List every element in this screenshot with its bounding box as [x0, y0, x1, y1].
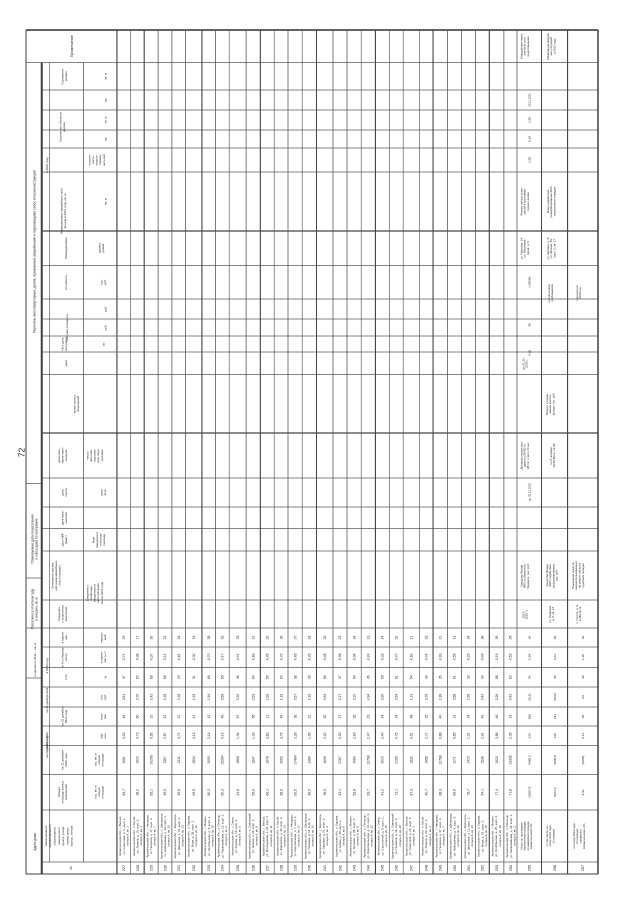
svg-text:2,28: 2,28 [293, 732, 297, 739]
svg-text:234: 234 [221, 865, 225, 871]
svg-text:селению: селению [100, 449, 104, 462]
svg-text:12: 12 [207, 715, 211, 719]
svg-text:-0,69: -0,69 [251, 653, 255, 661]
svg-text:литера А, кв. 9: литера А, кв. 9 [356, 826, 360, 846]
svg-text:3,71: 3,71 [177, 732, 181, 739]
svg-text:0,17: 0,17 [338, 694, 342, 701]
svg-text:литера А, кв. 11: литера А, кв. 11 [269, 825, 273, 847]
svg-text:0,57: 0,57 [293, 694, 297, 701]
svg-text:228: 228 [136, 865, 140, 871]
svg-text:литера А, кв. 13: литера А, кв. 13 [180, 825, 184, 847]
svg-text:руб.: руб. [103, 694, 107, 700]
svg-text:-0,74: -0,74 [424, 653, 428, 661]
svg-text:45: 45 [367, 675, 371, 679]
svg-text:цах: цах [64, 635, 68, 640]
svg-text:№ 59-ФЗ от 12.05: № 59-ФЗ от 12.05 [552, 443, 556, 467]
svg-text:49: 49 [279, 715, 283, 719]
svg-text:58: 58 [293, 675, 297, 679]
svg-text:3,54: 3,54 [394, 694, 398, 701]
svg-text:80,2: 80,2 [207, 789, 211, 796]
svg-text:44: 44 [122, 715, 126, 719]
svg-text:21: 21 [438, 636, 442, 640]
svg-text:59,6: 59,6 [251, 789, 255, 796]
svg-text:этап (очередь): этап (очередь) [57, 565, 61, 585]
svg-text:69,5: 69,5 [192, 789, 196, 796]
svg-text:-0,30: -0,30 [192, 653, 196, 661]
svg-text:3,10: 3,10 [352, 694, 356, 701]
svg-text:13768: 13768 [367, 755, 371, 764]
svg-text:243: 243 [352, 865, 356, 871]
svg-text:61: 61 [394, 675, 398, 679]
svg-text:4,91: 4,91 [581, 789, 585, 795]
svg-text:241: 241 [323, 865, 327, 871]
svg-text:87,3: 87,3 [409, 789, 413, 796]
svg-text:Ликвидировано: Ликвидировано [64, 237, 68, 259]
svg-text:27: 27 [338, 715, 342, 719]
svg-text:34: 34 [352, 636, 356, 640]
svg-text:39: 39 [495, 636, 499, 640]
svg-text:литера А, кв. 3: литера А, кв. 3 [325, 826, 329, 846]
svg-text:1868: 1868 [236, 756, 240, 764]
svg-text:41: 41 [192, 715, 196, 719]
svg-text:корпус, литера: корпус, литера [70, 825, 74, 846]
svg-text:(факт): (факт) [64, 535, 68, 544]
svg-text:57: 57 [236, 715, 240, 719]
svg-text:89,5: 89,5 [453, 789, 457, 796]
svg-text:-0,11: -0,11 [163, 654, 167, 661]
svg-text:30: 30 [481, 675, 485, 679]
svg-text:заселении: заселении [64, 606, 68, 621]
svg-text:28,11: 28,11 [528, 693, 532, 701]
svg-text:1480: 1480 [308, 756, 312, 764]
svg-text:39: 39 [424, 675, 428, 679]
svg-text:36: 36 [293, 715, 297, 719]
svg-text:1,69: 1,69 [265, 694, 269, 701]
svg-text:235: 235 [236, 865, 240, 871]
svg-text:литера А, кв. 19: литера А, кв. 19 [210, 825, 214, 847]
svg-text:562: 562 [528, 714, 532, 719]
svg-text:31: 31 [453, 715, 457, 719]
svg-text:переселение граждан: переселение граждан [552, 186, 556, 216]
svg-text:0,19: 0,19 [221, 732, 225, 739]
svg-text:литера А, кв. 18: литера А, кв. 18 [398, 825, 402, 847]
svg-text:2093: 2093 [207, 756, 211, 764]
svg-text:6,18: 6,18 [528, 136, 532, 142]
svg-text:50,3: 50,3 [221, 789, 225, 796]
svg-text:29: 29 [553, 636, 557, 640]
svg-text:12087,9: 12087,9 [528, 786, 532, 797]
svg-text:на 31 декабря 2011: на 31 декабря 2011 [45, 687, 49, 713]
svg-text:66: 66 [163, 675, 167, 679]
svg-text:литера А, кв. 10: литера А, кв. 10 [167, 825, 171, 847]
svg-text:-0,45: -0,45 [265, 653, 269, 661]
svg-text:12768: 12768 [438, 755, 442, 764]
svg-text:24: 24 [381, 636, 385, 640]
svg-text:15: 15 [192, 636, 196, 640]
svg-text:232: 232 [192, 865, 196, 871]
svg-text:2053: 2053 [279, 756, 283, 764]
svg-text:кв. м: кв. м [103, 73, 107, 80]
svg-text:4,13: 4,13 [192, 732, 196, 739]
svg-text:37: 37 [338, 675, 342, 679]
svg-text:59: 59 [265, 675, 269, 679]
svg-text:11: 11 [409, 636, 413, 640]
svg-text:литера А, кв. 4: литера А, кв. 4 [139, 826, 143, 846]
svg-text:1520: 1520 [495, 756, 499, 764]
svg-text:литера А, кв. 14: литера А, кв. 14 [283, 825, 287, 847]
svg-text:1961: 1961 [122, 756, 126, 764]
svg-text:44,6: 44,6 [236, 789, 240, 796]
svg-text:65: 65 [221, 675, 225, 679]
svg-text:54: 54 [352, 675, 356, 679]
svg-text:литера А, кв. 1: литера А, кв. 1 [125, 826, 129, 846]
svg-text:и снесено, кв. м: и снесено, кв. м [35, 597, 39, 621]
svg-text:66,1: 66,1 [265, 789, 269, 796]
svg-text:46,5: 46,5 [308, 789, 312, 796]
svg-text:34: 34 [467, 636, 471, 640]
svg-text:32: 32 [394, 636, 398, 640]
svg-text:73,1: 73,1 [394, 789, 398, 796]
svg-text:Стоимость,: Стоимость, [64, 274, 68, 290]
svg-text:1473: 1473 [467, 756, 471, 764]
svg-text:-0,52: -0,52 [509, 653, 513, 661]
svg-text:256: 256 [553, 865, 557, 871]
svg-text:0,53: 0,53 [251, 694, 255, 701]
svg-text:17: 17 [136, 636, 140, 640]
svg-text:39: 39 [279, 636, 283, 640]
svg-text:жителей: жителей [102, 154, 106, 166]
svg-text:3,90: 3,90 [381, 694, 385, 701]
svg-text:селения: селения [64, 512, 68, 524]
svg-text:46: 46 [221, 715, 225, 719]
svg-text:5,11: 5,11 [581, 733, 585, 739]
svg-text:54: 54 [409, 675, 413, 679]
svg-text:тыс. руб.: тыс. руб. [555, 569, 559, 581]
svg-text:0,18: 0,18 [177, 694, 181, 701]
svg-text:214: 214 [528, 733, 532, 738]
svg-text:литера А, кв. 8: литера А, кв. 8 [255, 826, 259, 846]
svg-text:-0,47: -0,47 [394, 653, 398, 661]
svg-text:0,43: 0,43 [122, 732, 126, 739]
svg-text:60: 60 [279, 675, 283, 679]
svg-text:0,42: 0,42 [509, 694, 513, 701]
svg-text:сноса: сноса [64, 488, 68, 496]
svg-text:помещений: помещений [64, 784, 68, 800]
svg-text:3,75: 3,75 [279, 732, 283, 739]
svg-text:21: 21 [177, 715, 181, 719]
svg-text:литера А, кв. 2: литера А, кв. 2 [512, 826, 516, 846]
svg-text:1,94: 1,94 [207, 694, 211, 701]
svg-text:254: 254 [509, 865, 513, 871]
svg-text:231: 231 [177, 865, 181, 871]
svg-text:246: 246 [395, 865, 399, 871]
svg-text:2,42: 2,42 [323, 732, 327, 739]
svg-text:дата: дата [64, 360, 68, 367]
svg-text:ед.: ед. [103, 98, 107, 102]
svg-text:48: 48 [528, 323, 532, 327]
svg-text:13: 13 [367, 636, 371, 640]
svg-text:литера А, кв. 13: литера А, кв. 13 [470, 825, 474, 847]
svg-text:48: 48 [409, 715, 413, 719]
svg-text:1,34: 1,34 [236, 732, 240, 739]
svg-text:58,9: 58,9 [279, 789, 283, 796]
svg-text:18: 18 [308, 636, 312, 640]
svg-text:-0,36: -0,36 [136, 653, 140, 661]
svg-text:литера А, кв. 7: литера А, кв. 7 [442, 826, 446, 846]
svg-text:-0,45: -0,45 [293, 653, 297, 661]
svg-text:25: 25 [509, 636, 513, 640]
svg-text:цах (+/-): цах (+/-) [103, 652, 107, 663]
svg-text:-0,17: -0,17 [221, 653, 225, 661]
svg-text:30: 30 [323, 715, 327, 719]
svg-text:-5,11: -5,11 [553, 654, 557, 661]
svg-text:ровано: ровано [64, 71, 68, 81]
svg-text:Перечень многоквартирных домов: Перечень многоквартирных домов, признанн… [33, 170, 37, 333]
svg-text:2011 года: 2011 года [64, 710, 68, 724]
svg-text:домов: домов [101, 243, 105, 252]
svg-text:1538: 1538 [481, 756, 485, 764]
svg-text:33: 33 [467, 675, 471, 679]
svg-text:водоотведения: водоотведения [526, 36, 530, 57]
svg-text:литера А, кв. 10: литера А, кв. 10 [456, 825, 460, 847]
svg-text:Адрес дома: Адрес дома [33, 833, 37, 851]
svg-text:29: 29 [122, 636, 126, 640]
svg-text:253: 253 [495, 865, 499, 871]
svg-text:3,58: 3,58 [453, 694, 457, 701]
svg-text:37: 37 [293, 636, 297, 640]
svg-text:литера А, кв. 15: литера А, кв. 15 [384, 825, 388, 847]
svg-text:1,94596: 1,94596 [528, 277, 532, 288]
svg-text:шт.: шт. [101, 342, 105, 346]
svg-text:акта: акта [103, 489, 107, 495]
svg-text:240: 240 [308, 865, 312, 871]
svg-text:1956: 1956 [424, 756, 428, 764]
svg-text:43,1: 43,1 [338, 789, 342, 796]
svg-text:1311: 1311 [177, 756, 181, 763]
svg-text:24: 24 [163, 636, 167, 640]
svg-text:0,56: 0,56 [221, 694, 225, 701]
svg-text:30,04: 30,04 [553, 693, 557, 701]
svg-text:0,85: 0,85 [453, 732, 457, 739]
svg-text:кв. м: кв. м [103, 198, 107, 205]
svg-text:36: 36 [528, 636, 532, 640]
svg-text:55: 55 [251, 715, 255, 719]
svg-text:255: 255 [528, 865, 532, 871]
svg-text:77,4: 77,4 [495, 789, 499, 796]
svg-text:-0,94: -0,94 [352, 653, 356, 661]
svg-text:0,42: 0,42 [481, 694, 485, 701]
svg-text:до 30.12.2022: до 30.12.2022 [528, 483, 532, 501]
svg-text:2010 года: 2010 года [64, 753, 68, 767]
svg-text:42: 42 [163, 715, 167, 719]
svg-text:единиц: единиц [62, 122, 66, 132]
svg-text:требованиям: требованиям [550, 284, 554, 302]
svg-text:2,282 кв. м: 2,282 кв. м [578, 607, 582, 621]
svg-text:40,7: 40,7 [424, 789, 428, 796]
svg-text:0,20: 0,20 [236, 694, 240, 701]
svg-text:1271: 1271 [453, 756, 457, 764]
svg-text:в 2012 году: в 2012 году [552, 38, 556, 54]
svg-text:0,73: 0,73 [136, 732, 140, 739]
svg-text:1,95: 1,95 [467, 694, 471, 701]
svg-text:31: 31 [251, 636, 255, 640]
svg-text:бюджета, тыс. руб.: бюджета, тыс. руб. [526, 563, 530, 589]
svg-text:62: 62 [509, 675, 513, 679]
svg-text:242: 242 [338, 865, 342, 871]
svg-text:2015 гг.: 2015 гг. [525, 609, 529, 619]
svg-text:61: 61 [453, 675, 457, 679]
svg-text:49: 49 [581, 636, 585, 640]
svg-text:литера А, кв. 1: литера А, кв. 1 [412, 826, 416, 846]
svg-text:2167: 2167 [338, 756, 342, 764]
svg-text:71,8: 71,8 [509, 789, 513, 796]
svg-text:4205,8: 4205,8 [553, 755, 557, 765]
svg-text:13: 13 [453, 636, 457, 640]
svg-text:2,87: 2,87 [163, 732, 167, 739]
svg-text:числу: числу [64, 653, 68, 661]
svg-text:66: 66 [149, 675, 153, 679]
svg-text:1,33: 1,33 [279, 694, 283, 701]
svg-text:60: 60 [136, 715, 140, 719]
svg-text:33: 33 [236, 636, 240, 640]
svg-text:1,45: 1,45 [581, 654, 585, 660]
svg-text:239: 239 [293, 865, 297, 871]
svg-text:33: 33 [424, 636, 428, 640]
svg-text:58: 58 [495, 675, 499, 679]
svg-text:249: 249 [439, 865, 443, 871]
svg-text:-0,15: -0,15 [495, 653, 499, 661]
svg-text:26: 26 [352, 715, 356, 719]
svg-text:в %: в % [64, 674, 68, 679]
svg-text:литера А, кв. 5: литера А, кв. 5 [238, 826, 242, 846]
svg-text:63,7: 63,7 [367, 789, 371, 796]
svg-text:247: 247 [410, 865, 414, 871]
svg-text:250: 250 [453, 865, 457, 871]
svg-text:-0,33: -0,33 [381, 653, 385, 661]
svg-text:118: 118 [553, 733, 557, 738]
svg-text:литера А, кв. 19: литера А, кв. 19 [498, 825, 502, 847]
svg-text:1622: 1622 [136, 756, 140, 764]
svg-text:17464: 17464 [293, 755, 297, 764]
svg-text:45,5: 45,5 [177, 789, 181, 796]
svg-text:22: 22 [149, 715, 153, 719]
svg-text:238: 238 [279, 865, 283, 871]
svg-text:04: 04 [581, 695, 585, 699]
svg-text:241: 241 [553, 714, 557, 719]
svg-text:24: 24 [381, 715, 385, 719]
svg-text:руб.: руб. [103, 324, 107, 330]
svg-text:56: 56 [323, 675, 327, 679]
svg-text:54: 54 [528, 675, 532, 679]
svg-text:2,71: 2,71 [424, 732, 428, 739]
svg-text:0,88: 0,88 [438, 732, 442, 739]
svg-text:85,1: 85,1 [149, 789, 153, 796]
svg-text:1978: 1978 [265, 756, 269, 764]
svg-text:2084: 2084 [352, 756, 356, 764]
svg-text:36: 36 [236, 675, 240, 679]
svg-text:торов, д. 3: торов, д. 3 [526, 241, 530, 256]
svg-text:3,61: 3,61 [122, 694, 126, 701]
svg-text:41,2: 41,2 [381, 789, 385, 796]
svg-text:2,63: 2,63 [352, 732, 356, 739]
svg-text:24: 24 [394, 715, 398, 719]
svg-text:-0,41: -0,41 [236, 653, 240, 661]
svg-text:229: 229 [149, 865, 153, 871]
svg-text:корп. 2, кв. 17: корп. 2, кв. 17 [552, 239, 556, 258]
svg-text:1,13: 1,13 [409, 694, 413, 701]
svg-text:литера А, кв. 16: литера А, кв. 16 [194, 825, 198, 847]
svg-text:34: 34 [177, 636, 181, 640]
svg-text:-0,98: -0,98 [338, 653, 342, 661]
svg-text:д. 6, кв. 14: д. 6, кв. 14 [551, 607, 555, 622]
svg-text:-0,26: -0,26 [308, 653, 312, 661]
svg-text:60,5: 60,5 [293, 789, 297, 796]
svg-text:-0,93: -0,93 [438, 653, 442, 661]
svg-text:52: 52 [136, 675, 140, 679]
svg-text:248: 248 [425, 865, 429, 871]
svg-text:литера А, кв. 4: литера А, кв. 4 [428, 826, 432, 846]
svg-text:0,56: 0,56 [149, 732, 153, 739]
svg-text:фонда в 2011 году, кв. м: фонда в 2011 году, кв. м [63, 194, 67, 229]
svg-text:-0,55: -0,55 [453, 653, 457, 661]
svg-text:1,99: 1,99 [438, 694, 442, 701]
svg-text:3,83: 3,83 [265, 732, 269, 739]
svg-text:-0,70: -0,70 [279, 653, 283, 661]
svg-text:233: 233 [207, 865, 211, 871]
svg-text:ный: ный [103, 634, 107, 640]
svg-text:53,8: 53,8 [352, 789, 356, 796]
svg-text:-0,37: -0,37 [149, 653, 153, 661]
svg-text:4,94: 4,94 [367, 694, 371, 701]
svg-text:литера А, кв. 7: литера А, кв. 7 [153, 826, 157, 846]
svg-text:3,75: 3,75 [424, 694, 428, 701]
svg-text:2,35: 2,35 [509, 732, 513, 739]
svg-text:1,99: 1,99 [528, 117, 532, 123]
svg-text:1605: 1605 [323, 756, 327, 764]
svg-text:237: 237 [266, 865, 270, 871]
svg-text:42: 42 [481, 715, 485, 719]
svg-text:2,40: 2,40 [381, 732, 385, 739]
svg-text:фонда, тыс. руб.: фонда, тыс. руб. [551, 393, 555, 416]
svg-text:ед.: ед. [103, 137, 107, 141]
svg-text:24: 24 [467, 715, 471, 719]
svg-text:13336: 13336 [509, 755, 513, 764]
svg-text:1,93: 1,93 [192, 694, 196, 701]
svg-text:47: 47 [122, 675, 126, 679]
svg-text:и сноса дома по программе: и сноса дома по программе [35, 518, 39, 559]
svg-text:площади: площади [101, 786, 105, 799]
svg-text:3,70: 3,70 [136, 694, 140, 701]
svg-text:84,7: 84,7 [122, 789, 126, 796]
svg-text:45,9: 45,9 [163, 789, 167, 796]
svg-text:2,91: 2,91 [481, 732, 485, 739]
svg-text:-0,70: -0,70 [207, 653, 211, 661]
svg-text:и снесено в 2011 г., кв. м: и снесено в 2011 г., кв. м [33, 643, 37, 677]
svg-text:31: 31 [192, 675, 196, 679]
svg-text:15264: 15264 [221, 755, 225, 764]
svg-text:литера А, кв. 6: литера А, кв. 6 [342, 826, 346, 846]
svg-text:Сметная стоимость: Сметная стоимость [65, 313, 69, 341]
svg-text:1367: 1367 [163, 756, 167, 764]
svg-text:2165: 2165 [394, 756, 398, 764]
svg-text:%: % [103, 676, 107, 679]
svg-text:65: 65 [207, 675, 211, 679]
svg-text:-0,29: -0,29 [467, 653, 471, 661]
svg-text:1647: 1647 [251, 756, 255, 764]
svg-text:0,94: 0,94 [323, 694, 327, 701]
svg-text:2,42: 2,42 [149, 694, 153, 701]
svg-text:на 31 декабря 2010: на 31 декабря 2010 [45, 732, 49, 758]
